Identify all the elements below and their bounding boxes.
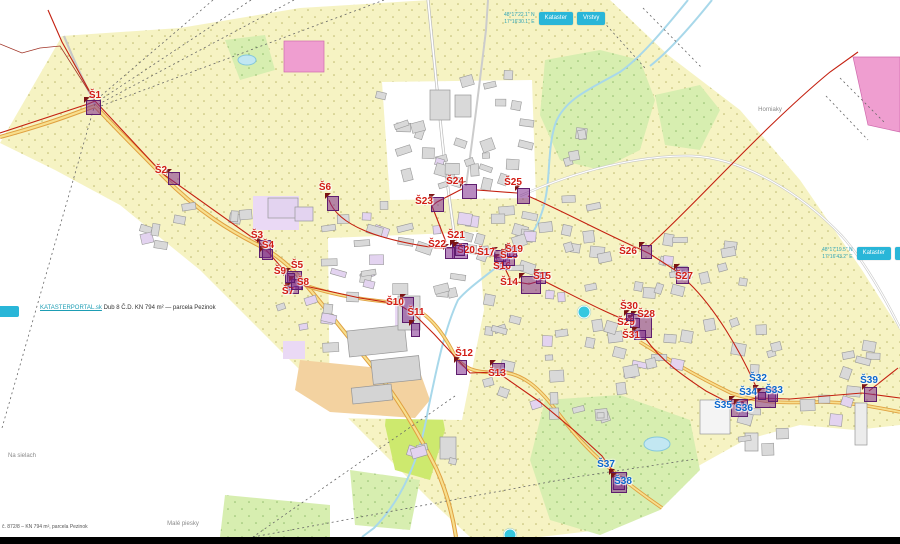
kataster-portal-link[interactable]: KATASTERPORTAL.sk bbox=[40, 305, 102, 311]
layers-button-2[interactable]: Vrstvy bbox=[895, 247, 900, 260]
station-label-Š13[interactable]: Š13 bbox=[488, 368, 506, 379]
station-marker-Š30[interactable] bbox=[626, 313, 634, 321]
kataster-button[interactable]: Kataster bbox=[539, 12, 573, 25]
station-label-Š8[interactable]: Š8 bbox=[297, 277, 309, 288]
measurement-result: KATASTERPORTAL.sk Dub 8 Č.D. KN 794 m² —… bbox=[40, 305, 216, 311]
station-label-Š27[interactable]: Š27 bbox=[675, 271, 693, 282]
station-marker-Š26[interactable] bbox=[641, 245, 652, 259]
station-label-Š34[interactable]: Š34 bbox=[739, 387, 757, 398]
topright-controls: 48°17'22.1" N 17°16'30.1" E Kataster Vrs… bbox=[504, 12, 605, 26]
station-label-Š11[interactable]: Š11 bbox=[407, 307, 424, 318]
map-canvas bbox=[0, 0, 900, 544]
station-label-Š5[interactable]: Š5 bbox=[291, 260, 303, 271]
station-marker-Š12[interactable] bbox=[456, 360, 467, 375]
station-marker-Š39[interactable] bbox=[864, 387, 877, 402]
station-label-Š23[interactable]: Š23 bbox=[415, 196, 433, 207]
station-marker-Š2[interactable] bbox=[168, 172, 180, 185]
station-label-Š19[interactable]: Š19 bbox=[505, 244, 523, 255]
station-label-Š12[interactable]: Š12 bbox=[455, 348, 473, 359]
bottom-bar bbox=[0, 537, 900, 544]
station-label-Š4[interactable]: Š4 bbox=[262, 240, 274, 251]
station-marker-Š21[interactable] bbox=[455, 245, 465, 256]
gps-coordinates: 48°17'22.1" N 17°16'30.1" E bbox=[504, 12, 535, 26]
station-marker-Š22[interactable] bbox=[445, 247, 455, 259]
station-marker-Š25[interactable] bbox=[517, 188, 530, 204]
map-viewport[interactable]: Š1Š2Š3Š4Š5Š6Š7Š8Š9Š10Š11Š12Š13Š14Š15Š16Š… bbox=[0, 0, 900, 544]
station-label-Š25[interactable]: Š25 bbox=[504, 177, 522, 188]
station-label-Š17[interactable]: Š17 bbox=[477, 247, 495, 258]
station-label-Š22[interactable]: Š22 bbox=[428, 239, 446, 250]
gps-coordinates-2: 48°17'19.5" N 17°16'43.2" E bbox=[822, 247, 853, 261]
station-label-Š21[interactable]: Š21 bbox=[447, 230, 465, 241]
station-label-Š1[interactable]: Š1 bbox=[89, 90, 101, 101]
station-label-Š30[interactable]: Š30 bbox=[620, 301, 638, 312]
station-marker-Š34[interactable] bbox=[758, 392, 766, 400]
station-label-Š14[interactable]: Š14 bbox=[500, 277, 518, 288]
poi-dot[interactable] bbox=[578, 306, 591, 319]
collapse-panel-button[interactable] bbox=[0, 306, 19, 317]
station-label-Š36[interactable]: Š36 bbox=[735, 403, 753, 414]
station-label-Š9[interactable]: Š9 bbox=[274, 266, 286, 277]
layers-button[interactable]: Vrstvy bbox=[577, 12, 605, 25]
station-marker-Š1[interactable] bbox=[86, 100, 101, 115]
station-label-Š33[interactable]: Š33 bbox=[765, 385, 783, 396]
station-marker-Š6[interactable] bbox=[327, 196, 339, 211]
station-label-Š24[interactable]: Š24 bbox=[446, 176, 464, 187]
station-marker-Š11[interactable] bbox=[411, 323, 420, 337]
station-label-Š2[interactable]: Š2 bbox=[155, 165, 167, 176]
kataster-button-2[interactable]: Kataster bbox=[857, 247, 891, 260]
midright-controls: 48°17'19.5" N 17°16'43.2" E Kataster Vrs… bbox=[822, 247, 900, 261]
station-label-Š10[interactable]: Š10 bbox=[386, 297, 404, 308]
station-label-Š38[interactable]: Š38 bbox=[614, 476, 632, 487]
station-label-Š31[interactable]: Š31 bbox=[622, 330, 640, 341]
station-label-Š35[interactable]: Š35 bbox=[714, 400, 732, 411]
station-label-Š15[interactable]: Š15 bbox=[533, 271, 551, 282]
station-label-Š32[interactable]: Š32 bbox=[749, 373, 767, 384]
station-label-Š6[interactable]: Š6 bbox=[319, 182, 331, 193]
station-label-Š37[interactable]: Š37 bbox=[597, 459, 615, 470]
station-label-Š39[interactable]: Š39 bbox=[860, 375, 878, 386]
measurement-text: Dub 8 Č.D. KN 794 m² — parcela Pezinok bbox=[104, 305, 216, 311]
station-marker-Š9[interactable] bbox=[285, 273, 295, 283]
station-marker-Š24[interactable] bbox=[462, 184, 477, 199]
station-label-Š26[interactable]: Š26 bbox=[619, 246, 637, 257]
